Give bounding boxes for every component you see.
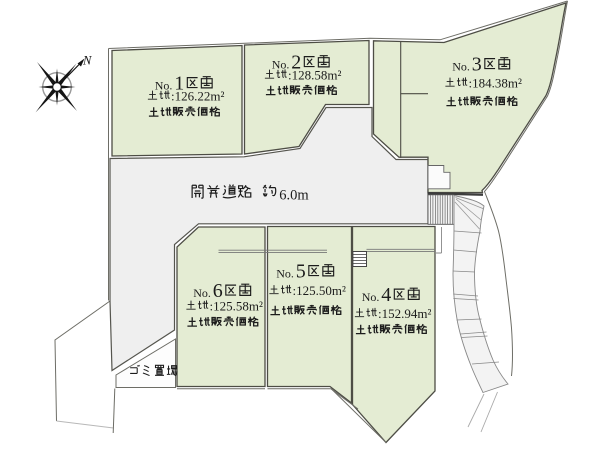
svg-text:6.0m: 6.0m	[279, 188, 309, 204]
svg-text::125.50m²: :125.50m²	[293, 283, 346, 298]
svg-text:No.: No.	[452, 60, 470, 74]
svg-text:No.: No.	[276, 267, 294, 281]
svg-text:No.: No.	[155, 79, 173, 93]
svg-text:N: N	[82, 54, 92, 68]
svg-text:No.: No.	[362, 290, 380, 304]
svg-text::128.58m²: :128.58m²	[288, 68, 341, 83]
svg-text:No.: No.	[272, 58, 290, 72]
svg-text:No.: No.	[193, 286, 211, 300]
svg-text:5: 5	[296, 261, 306, 283]
svg-text::152.94m²: :152.94m²	[378, 306, 431, 321]
svg-text::184.38m²: :184.38m²	[469, 76, 522, 91]
svg-text::126.22m²: :126.22m²	[171, 89, 224, 104]
svg-text::125.58m²: :125.58m²	[210, 299, 263, 314]
svg-text:3: 3	[472, 54, 482, 76]
svg-text:4: 4	[381, 284, 391, 306]
